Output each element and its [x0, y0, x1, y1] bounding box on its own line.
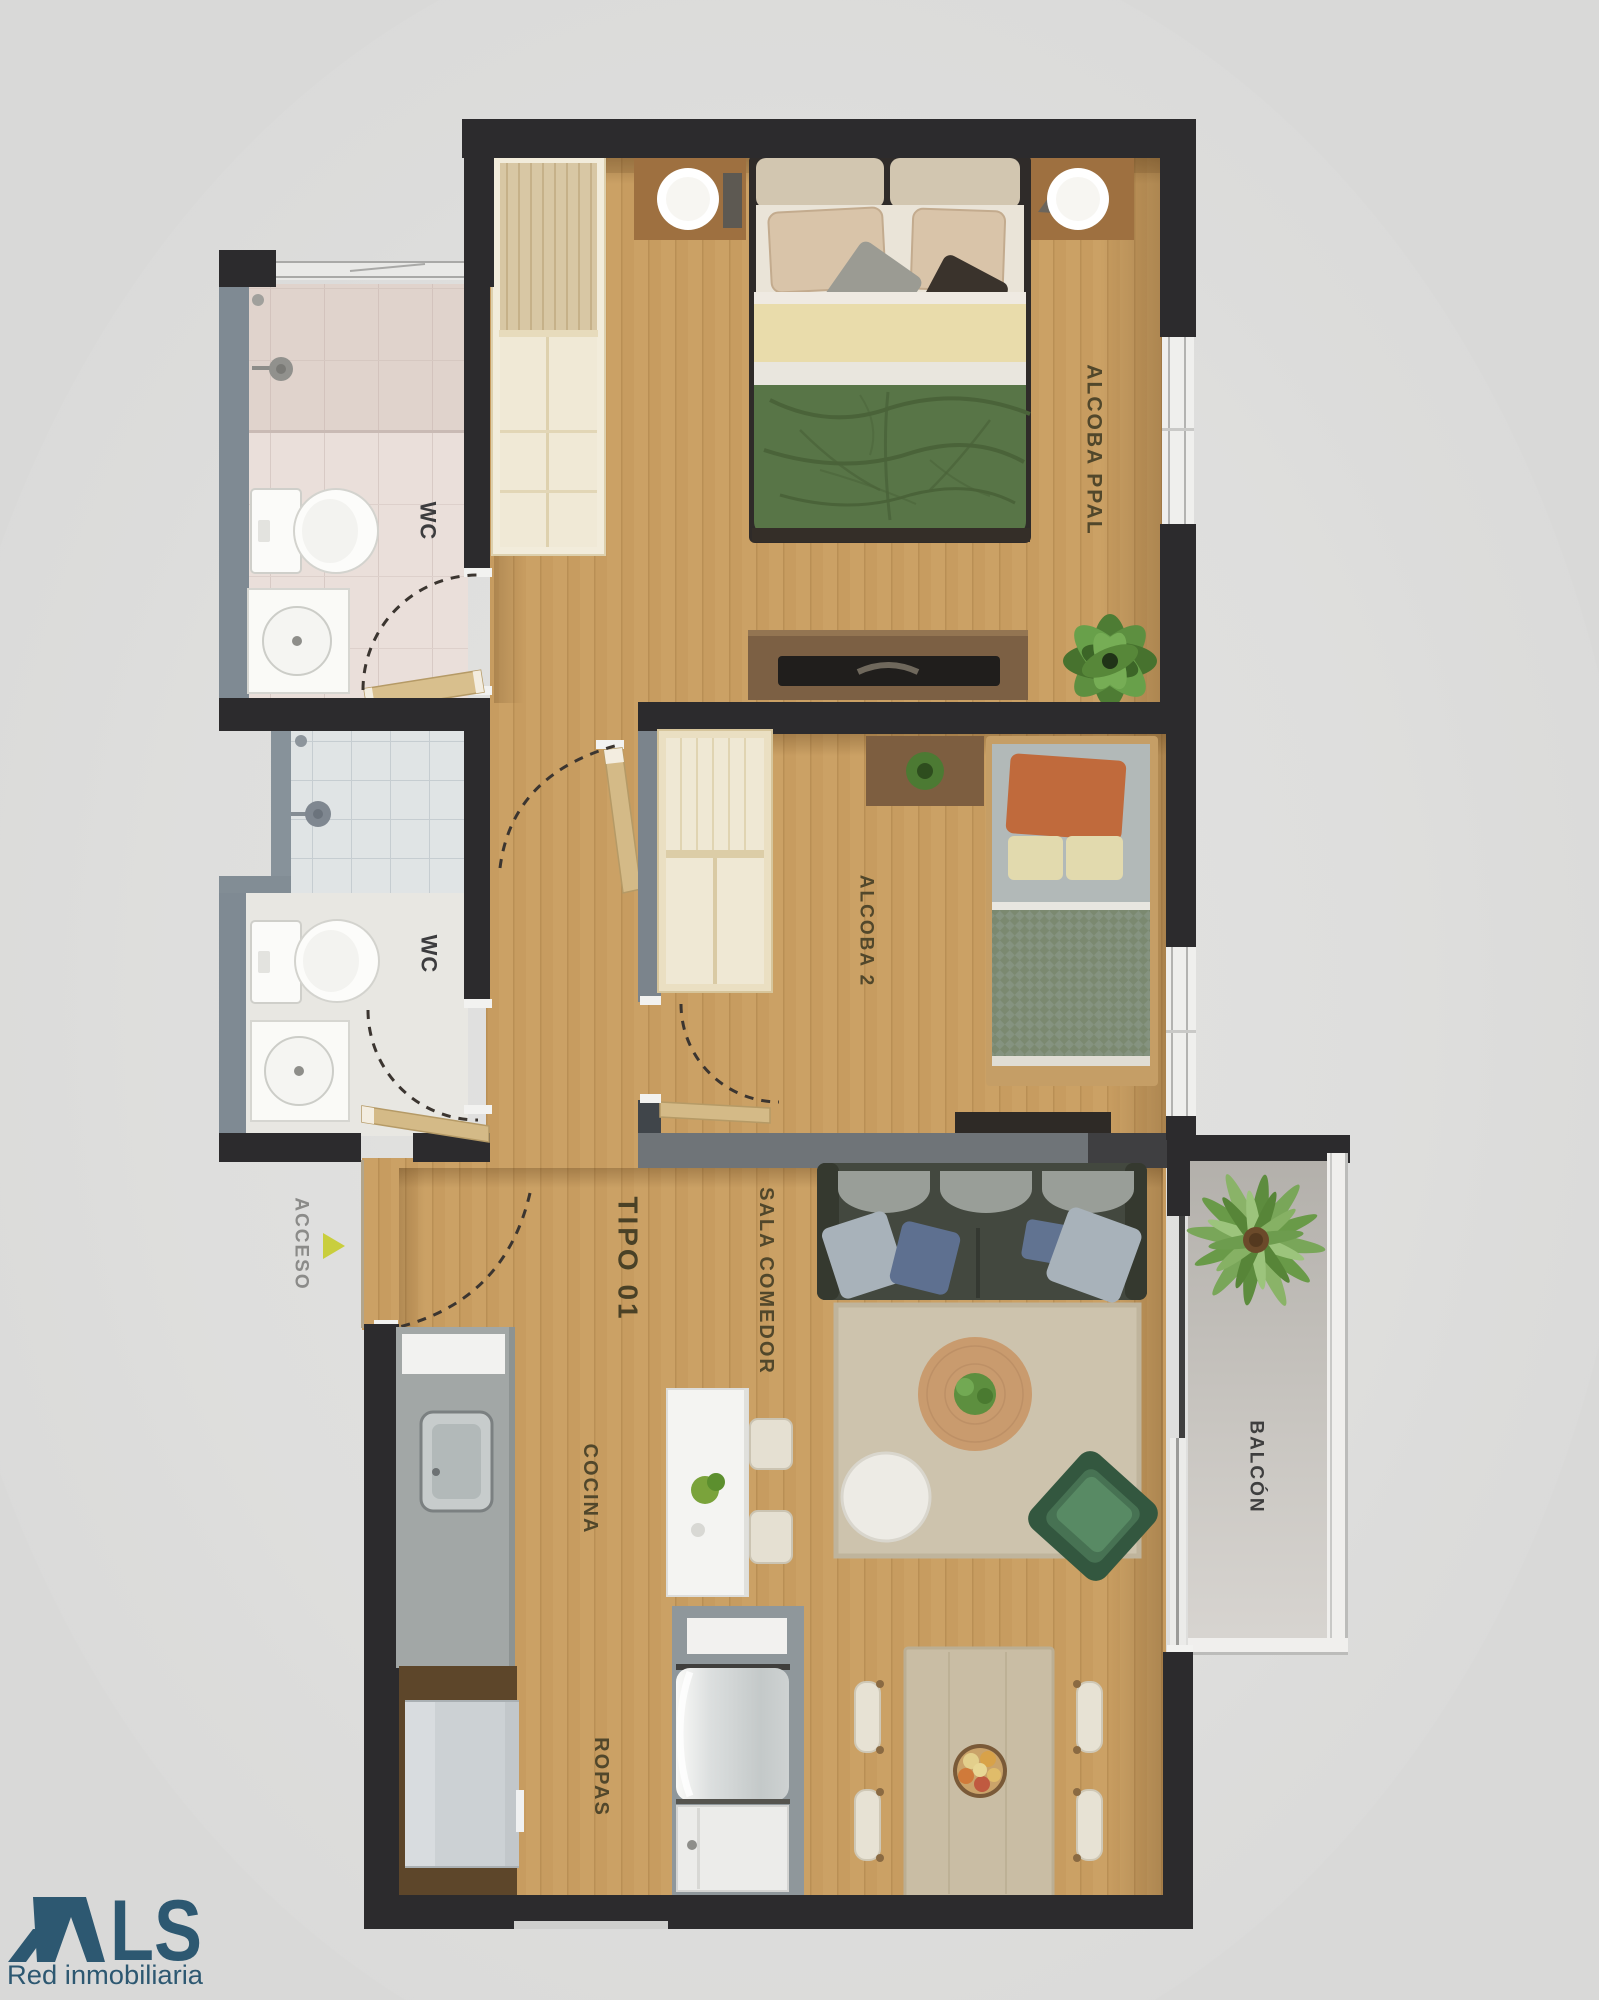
- svg-text:Red inmobiliaria: Red inmobiliaria: [7, 1960, 204, 1990]
- svg-text:WC: WC: [417, 935, 442, 974]
- svg-text:ROPAS: ROPAS: [590, 1737, 612, 1817]
- svg-text:COCINA: COCINA: [579, 1444, 601, 1535]
- svg-text:ALCOBA PPAL: ALCOBA PPAL: [1083, 364, 1106, 535]
- svg-text:BALCÓN: BALCÓN: [1246, 1420, 1268, 1513]
- svg-text:TIPO 01: TIPO 01: [613, 1196, 644, 1321]
- svg-text:SALA COMEDOR: SALA COMEDOR: [755, 1187, 777, 1375]
- svg-text:ALCOBA 2: ALCOBA 2: [856, 875, 877, 987]
- svg-text:ACCESO: ACCESO: [291, 1197, 312, 1290]
- svg-text:WC: WC: [416, 502, 441, 541]
